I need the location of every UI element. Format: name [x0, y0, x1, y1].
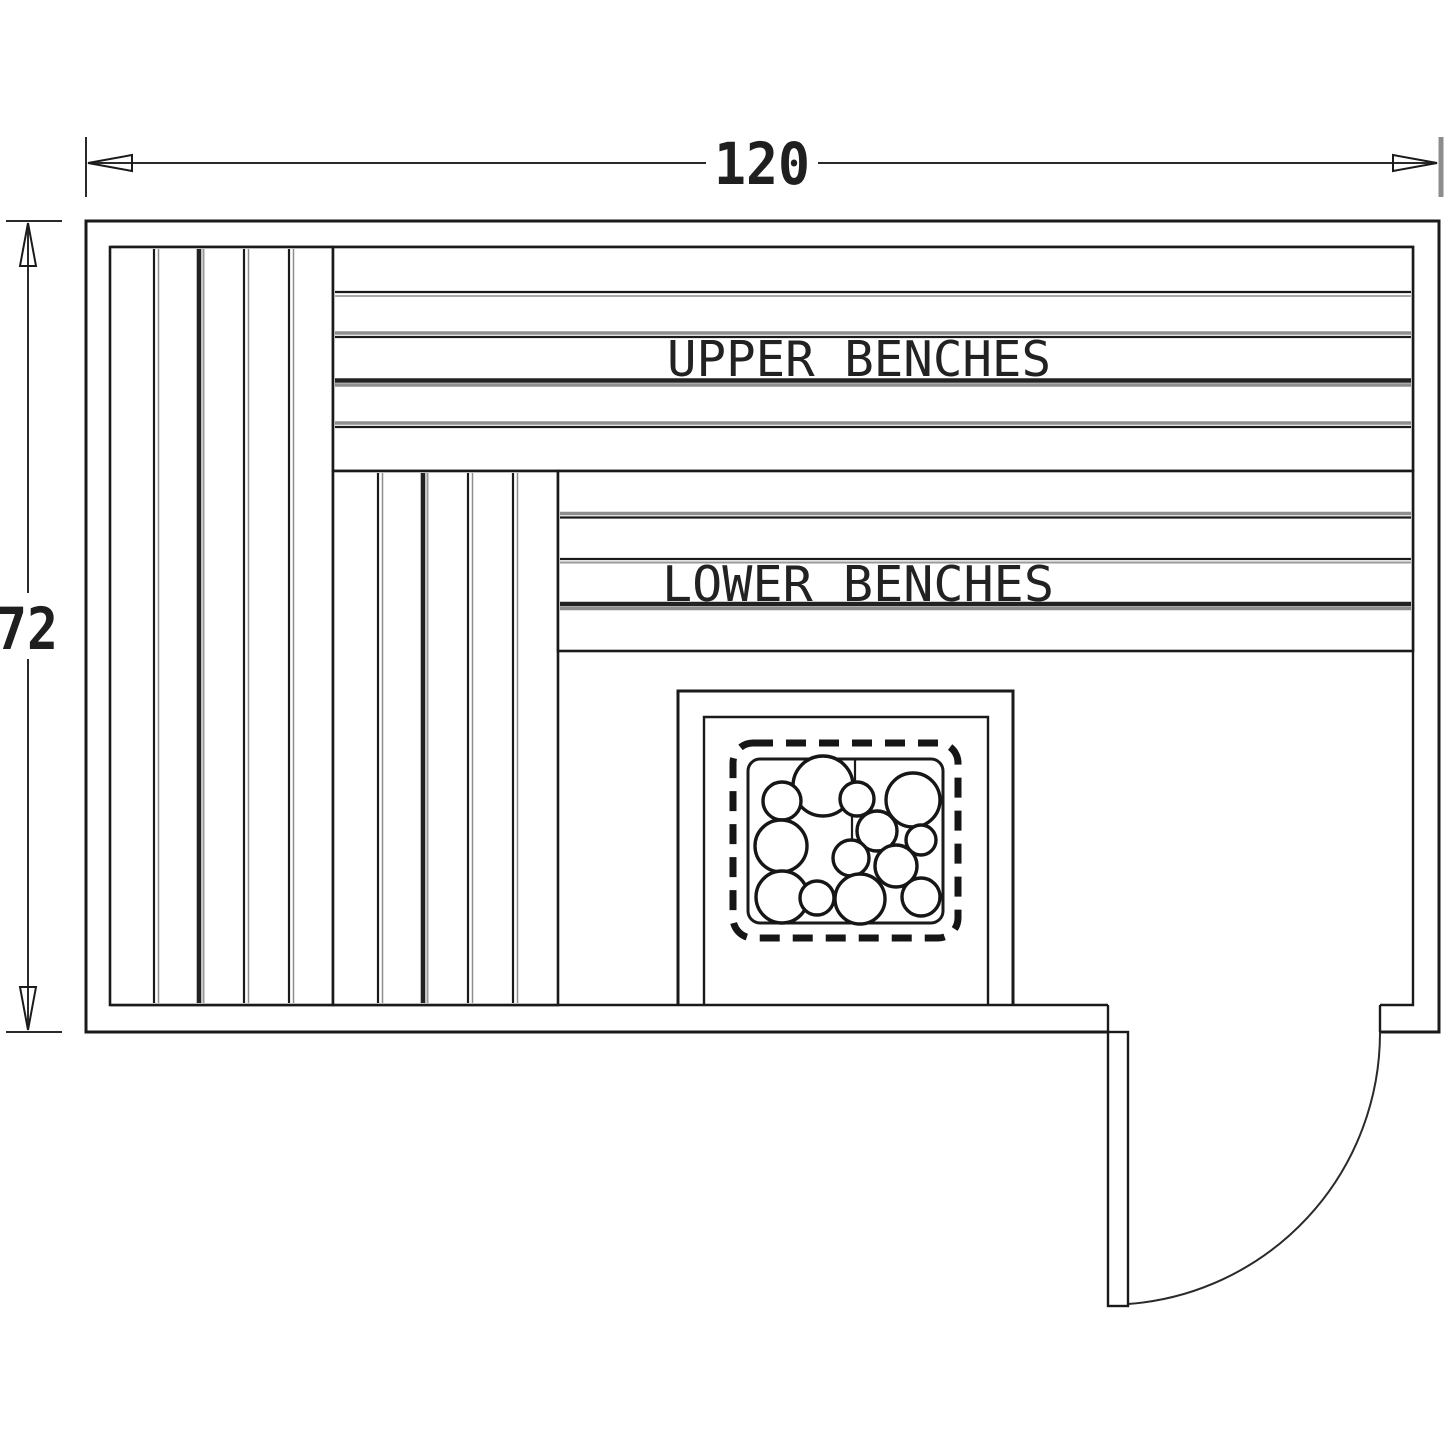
- upper-benches-band: UPPER BENCHES: [333, 247, 1413, 471]
- lower-bench-left-panel: [333, 471, 558, 1005]
- door-leaf: [1108, 1032, 1128, 1306]
- lower-benches-band: LOWER BENCHES: [558, 471, 1413, 651]
- heater: [678, 691, 1013, 1004]
- sauna-floor-plan: 120 72: [0, 0, 1445, 1445]
- rock: [835, 874, 885, 924]
- width-dimension: 120: [86, 130, 1441, 198]
- rock: [902, 878, 940, 916]
- bench-panel: [110, 247, 333, 1005]
- width-dimension-value: 120: [714, 130, 810, 198]
- lower-benches-label: LOWER BENCHES: [662, 556, 1054, 613]
- rock: [763, 782, 801, 820]
- door-swing-arc: [1128, 1032, 1380, 1304]
- door: [1108, 1032, 1380, 1306]
- rock: [833, 840, 869, 876]
- rock: [800, 881, 834, 915]
- height-dimension-value: 72: [0, 595, 58, 663]
- heater-rocks: [755, 756, 940, 924]
- bench-panel: [333, 471, 558, 1005]
- height-dimension: 72: [0, 221, 62, 1032]
- upper-benches-label: UPPER BENCHES: [667, 331, 1051, 388]
- upper-bench-left-panel: [110, 247, 333, 1005]
- floor-plan-drawing: 120 72: [0, 0, 1445, 1445]
- rock: [755, 820, 807, 872]
